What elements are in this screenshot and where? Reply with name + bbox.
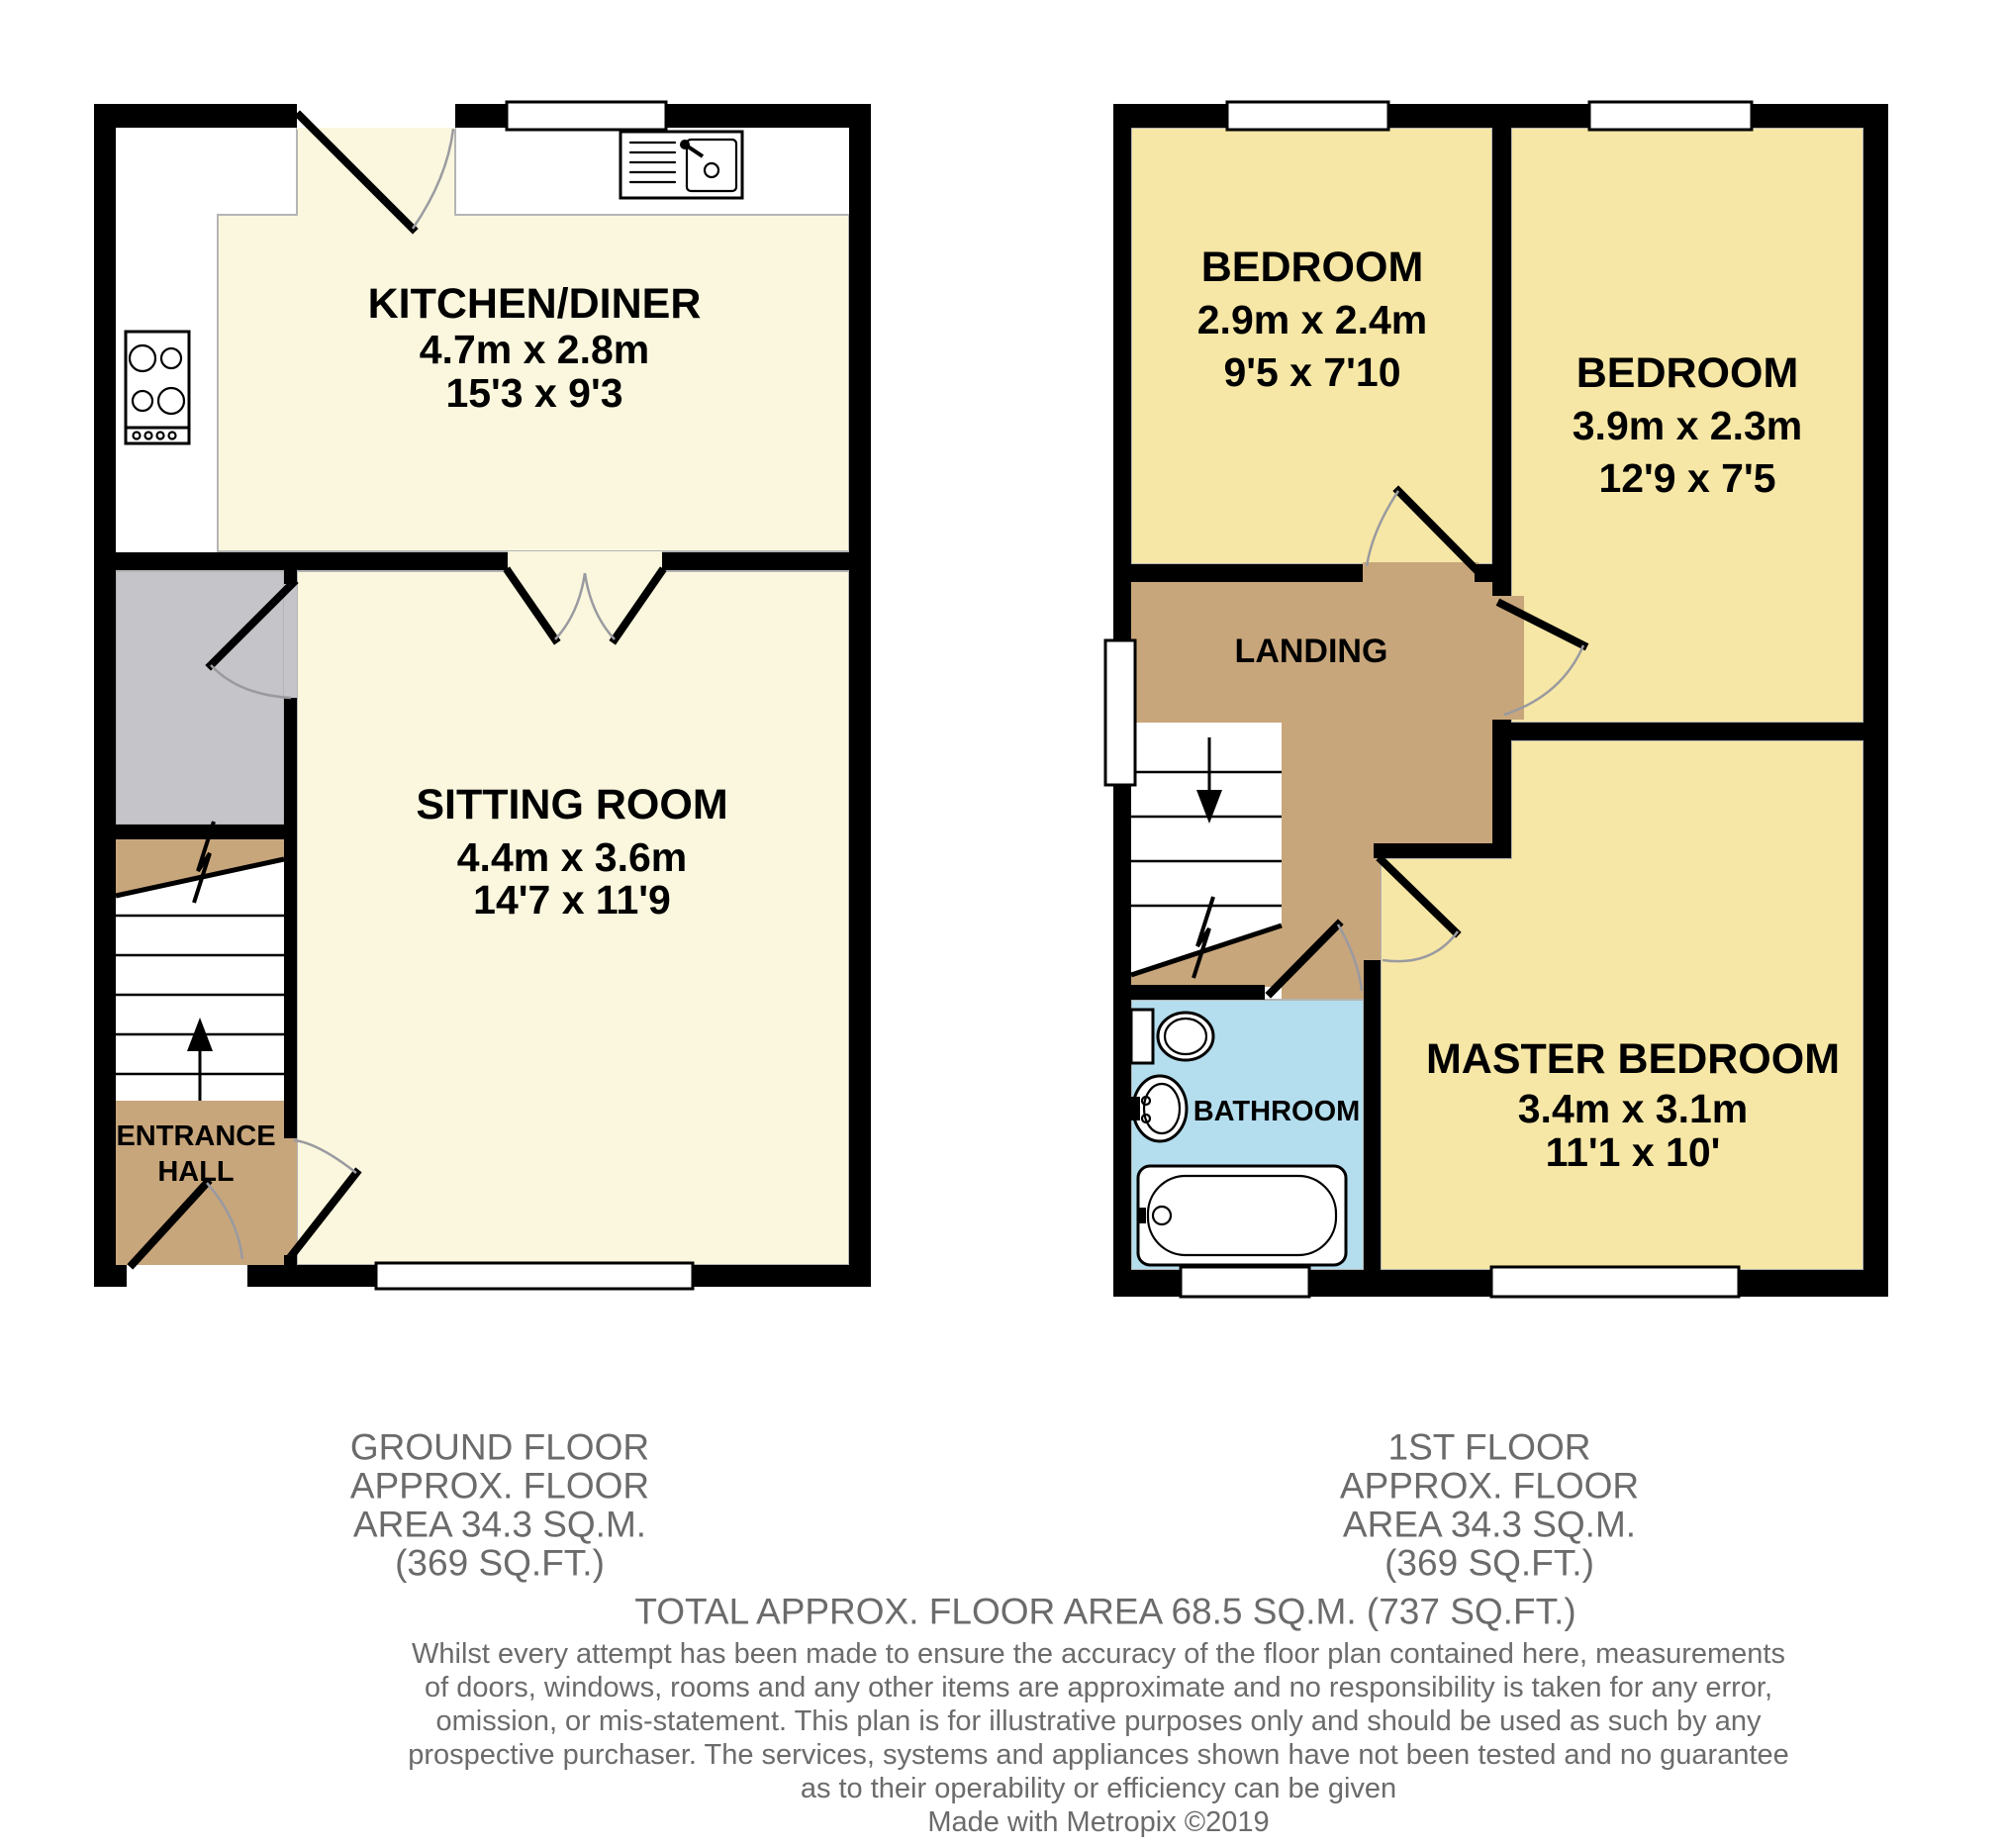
- ff-footer-line-2: APPROX. FLOOR: [1340, 1466, 1639, 1507]
- bedroom2-label: BEDROOM: [1576, 349, 1799, 397]
- basin-icon: [1131, 1076, 1187, 1141]
- disclaimer-line-4: prospective purchaser. The services, sys…: [408, 1739, 1789, 1771]
- window-bedroom-2: [1589, 102, 1752, 130]
- window-bathroom: [1181, 1267, 1309, 1297]
- window-kitchen: [507, 102, 666, 130]
- room-bedroom-1: [1131, 128, 1492, 564]
- bedroom1-metric: 2.9m x 2.4m: [1197, 297, 1428, 342]
- master-metric: 3.4m x 3.1m: [1518, 1086, 1749, 1131]
- kitchen-imperial: 15'3 x 9'3: [445, 370, 622, 416]
- entrance-hall-label-1: ENTRANCE: [116, 1120, 275, 1152]
- back-door-gap: [297, 104, 455, 128]
- ff-footer-line-4: (369 SQ.FT.): [1384, 1543, 1594, 1584]
- bedroom1-imperial: 9'5 x 7'10: [1223, 349, 1400, 395]
- hall-door-opening: [284, 1138, 297, 1255]
- bedroom2-metric: 3.9m x 2.3m: [1573, 403, 1803, 448]
- toilet-icon: [1131, 1010, 1213, 1063]
- gf-footer-line-3: AREA 34.3 SQ.M.: [353, 1505, 646, 1545]
- wall-bed1-bottom: [1131, 564, 1363, 582]
- gf-footer-line-1: GROUND FLOOR: [350, 1427, 649, 1468]
- disclaimer-credit: Made with Metropix ©2019: [927, 1806, 1269, 1838]
- window-master: [1491, 1267, 1739, 1297]
- master-imperial: 11'1 x 10': [1546, 1129, 1721, 1175]
- sitting-metric: 4.4m x 3.6m: [457, 834, 688, 880]
- wall-bathroom-right: [1364, 960, 1381, 1270]
- bedroom2-imperial: 12'9 x 7'5: [1598, 455, 1775, 501]
- gf-footer-line-4: (369 SQ.FT.): [395, 1543, 605, 1584]
- wall-kitchen-sitting-right: [662, 552, 849, 570]
- disclaimer-line-3: omission, or mis-statement. This plan is…: [436, 1705, 1762, 1737]
- ground-floor-plan: KITCHEN/DINER 4.7m x 2.8m 15'3 x 9'3 SIT…: [94, 102, 871, 1289]
- bedroom1-label: BEDROOM: [1201, 243, 1424, 291]
- disclaimer-line-2: of doors, windows, rooms and any other i…: [425, 1672, 1772, 1703]
- wall-top-stub: [455, 104, 507, 128]
- sink-icon: [620, 132, 742, 198]
- ff-footer-line-3: AREA 34.3 SQ.M.: [1343, 1505, 1636, 1545]
- bathtub-icon: [1138, 1166, 1346, 1265]
- master-label: MASTER BEDROOM: [1426, 1035, 1840, 1083]
- wall-bed1-bed2: [1492, 128, 1511, 596]
- floorplan-drawing: KITCHEN/DINER 4.7m x 2.8m 15'3 x 9'3 SIT…: [0, 0, 2004, 1848]
- window-landing: [1105, 640, 1135, 785]
- ff-footer-line-1: 1ST FLOOR: [1388, 1427, 1591, 1468]
- window-bedroom-1: [1227, 102, 1388, 130]
- sitting-label: SITTING ROOM: [416, 781, 727, 828]
- wall-bed2-master: [1492, 723, 1863, 740]
- entrance-hall-label-2: HALL: [157, 1156, 234, 1188]
- wall-store-right-b: [284, 698, 297, 1138]
- first-floor-plan: BEDROOM 2.9m x 2.4m 9'5 x 7'10 BEDROOM 3…: [1105, 102, 1888, 1297]
- window-sitting: [376, 1263, 693, 1289]
- store-door-opening: [284, 584, 297, 698]
- disclaimer-line-1: Whilst every attempt has been made to en…: [412, 1638, 1785, 1670]
- footer: GROUND FLOOR APPROX. FLOOR AREA 34.3 SQ.…: [350, 1427, 1789, 1839]
- gf-footer-line-2: APPROX. FLOOR: [350, 1466, 649, 1507]
- kitchen-label: KITCHEN/DINER: [368, 280, 702, 328]
- double-door-opening: [508, 551, 662, 573]
- wall-bathroom-top: [1131, 985, 1265, 1000]
- stairs-down: [1131, 723, 1282, 987]
- sitting-imperial: 14'7 x 11'9: [473, 877, 671, 923]
- total-area-line: TOTAL APPROX. FLOOR AREA 68.5 SQ.M. (737…: [634, 1592, 1575, 1632]
- wall-kitchen-sitting-left: [116, 552, 508, 570]
- floorplan-page: KITCHEN/DINER 4.7m x 2.8m 15'3 x 9'3 SIT…: [0, 0, 2004, 1848]
- wall-landing-bottom: [1374, 843, 1511, 858]
- room-store: [116, 571, 284, 825]
- kitchen-metric: 4.7m x 2.8m: [420, 327, 650, 372]
- front-door-gap: [127, 1265, 247, 1287]
- hob-icon: [126, 332, 189, 443]
- disclaimer-line-5: as to their operability or efficiency ca…: [801, 1773, 1396, 1804]
- wall-store-bottom: [116, 825, 297, 839]
- bathroom-label: BATHROOM: [1193, 1096, 1361, 1127]
- landing-label: LANDING: [1235, 632, 1388, 670]
